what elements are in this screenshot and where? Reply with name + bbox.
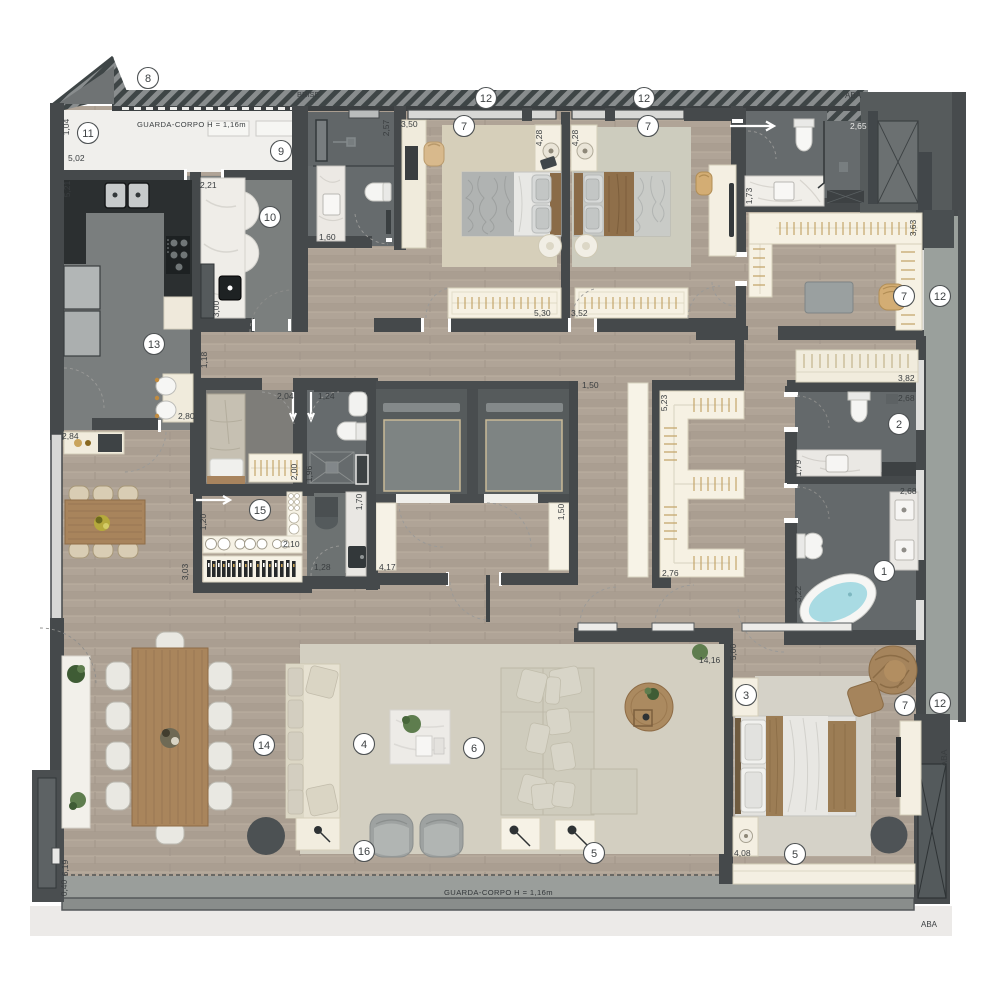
svg-text:2,00: 2,00 <box>289 463 299 480</box>
svg-text:2: 2 <box>896 419 902 431</box>
svg-text:2,57: 2,57 <box>381 119 391 136</box>
svg-text:ABA: ABA <box>939 749 949 766</box>
svg-text:3,52: 3,52 <box>571 308 588 318</box>
svg-text:5,00: 5,00 <box>728 643 738 660</box>
svg-text:4,28: 4,28 <box>570 129 580 146</box>
svg-text:2,21: 2,21 <box>200 180 217 190</box>
svg-text:4,17: 4,17 <box>379 562 396 572</box>
svg-text:1,79: 1,79 <box>793 459 803 476</box>
svg-text:4,08: 4,08 <box>734 848 751 858</box>
svg-text:7: 7 <box>901 291 907 303</box>
svg-text:12: 12 <box>638 93 650 105</box>
svg-text:1: 1 <box>881 566 887 578</box>
svg-text:5: 5 <box>591 848 597 860</box>
svg-text:1,50: 1,50 <box>582 380 599 390</box>
svg-text:3,82: 3,82 <box>898 373 915 383</box>
svg-text:3,50: 3,50 <box>401 119 418 129</box>
svg-text:ABA: ABA <box>921 920 938 929</box>
svg-text:1,70: 1,70 <box>354 493 364 510</box>
svg-text:14,16: 14,16 <box>699 655 721 665</box>
svg-text:7: 7 <box>902 700 908 712</box>
svg-text:6,19: 6,19 <box>60 859 70 876</box>
svg-text:GUARDA-CORPO H = 1,16m: GUARDA-CORPO H = 1,16m <box>137 120 246 129</box>
svg-text:6: 6 <box>471 743 477 755</box>
svg-text:1,20: 1,20 <box>198 513 208 530</box>
svg-text:2,65: 2,65 <box>850 121 867 131</box>
svg-text:12: 12 <box>480 93 492 105</box>
svg-text:2,84: 2,84 <box>62 431 79 441</box>
svg-text:2,68: 2,68 <box>898 393 915 403</box>
svg-text:1,96: 1,96 <box>304 465 314 482</box>
svg-text:3: 3 <box>743 690 749 702</box>
svg-text:7: 7 <box>645 121 651 133</box>
svg-text:4: 4 <box>361 739 367 751</box>
svg-text:1,04: 1,04 <box>61 118 71 135</box>
svg-text:11: 11 <box>82 128 93 140</box>
svg-text:12: 12 <box>934 291 946 303</box>
svg-text:3,00: 3,00 <box>211 300 221 317</box>
svg-text:0,40: 0,40 <box>59 879 69 896</box>
svg-text:5,21: 5,21 <box>62 180 72 197</box>
svg-text:GUARDA-CORPO H = 1,16m: GUARDA-CORPO H = 1,16m <box>444 888 553 897</box>
svg-text:5,30: 5,30 <box>534 308 551 318</box>
svg-text:3,22: 3,22 <box>793 585 803 602</box>
svg-text:1,73: 1,73 <box>744 187 754 204</box>
svg-text:14: 14 <box>258 740 270 752</box>
svg-text:12: 12 <box>934 698 946 710</box>
svg-text:1,28: 1,28 <box>314 562 331 572</box>
svg-text:4,28: 4,28 <box>534 129 544 146</box>
svg-text:BRISE: BRISE <box>297 90 320 99</box>
svg-text:9: 9 <box>278 146 284 158</box>
svg-text:3,03: 3,03 <box>180 563 190 580</box>
svg-text:15: 15 <box>254 505 266 517</box>
svg-text:13: 13 <box>148 339 160 351</box>
svg-text:1,60: 1,60 <box>319 232 336 242</box>
svg-text:8: 8 <box>145 73 151 85</box>
svg-text:2,80: 2,80 <box>178 411 195 421</box>
svg-text:1,18: 1,18 <box>199 351 209 368</box>
svg-text:16: 16 <box>358 846 370 858</box>
svg-text:1,24: 1,24 <box>318 391 335 401</box>
svg-text:5,23: 5,23 <box>659 394 669 411</box>
svg-text:ABA: ABA <box>845 91 862 100</box>
svg-text:2,10: 2,10 <box>283 539 300 549</box>
svg-text:10: 10 <box>264 212 276 224</box>
svg-text:1,50: 1,50 <box>556 503 566 520</box>
svg-text:3,63: 3,63 <box>908 219 918 236</box>
svg-text:5: 5 <box>792 849 798 861</box>
svg-text:7: 7 <box>461 121 467 133</box>
svg-text:2,68: 2,68 <box>900 486 917 496</box>
svg-text:2,04: 2,04 <box>277 391 294 401</box>
svg-text:2,76: 2,76 <box>662 568 679 578</box>
svg-text:5,02: 5,02 <box>68 153 85 163</box>
